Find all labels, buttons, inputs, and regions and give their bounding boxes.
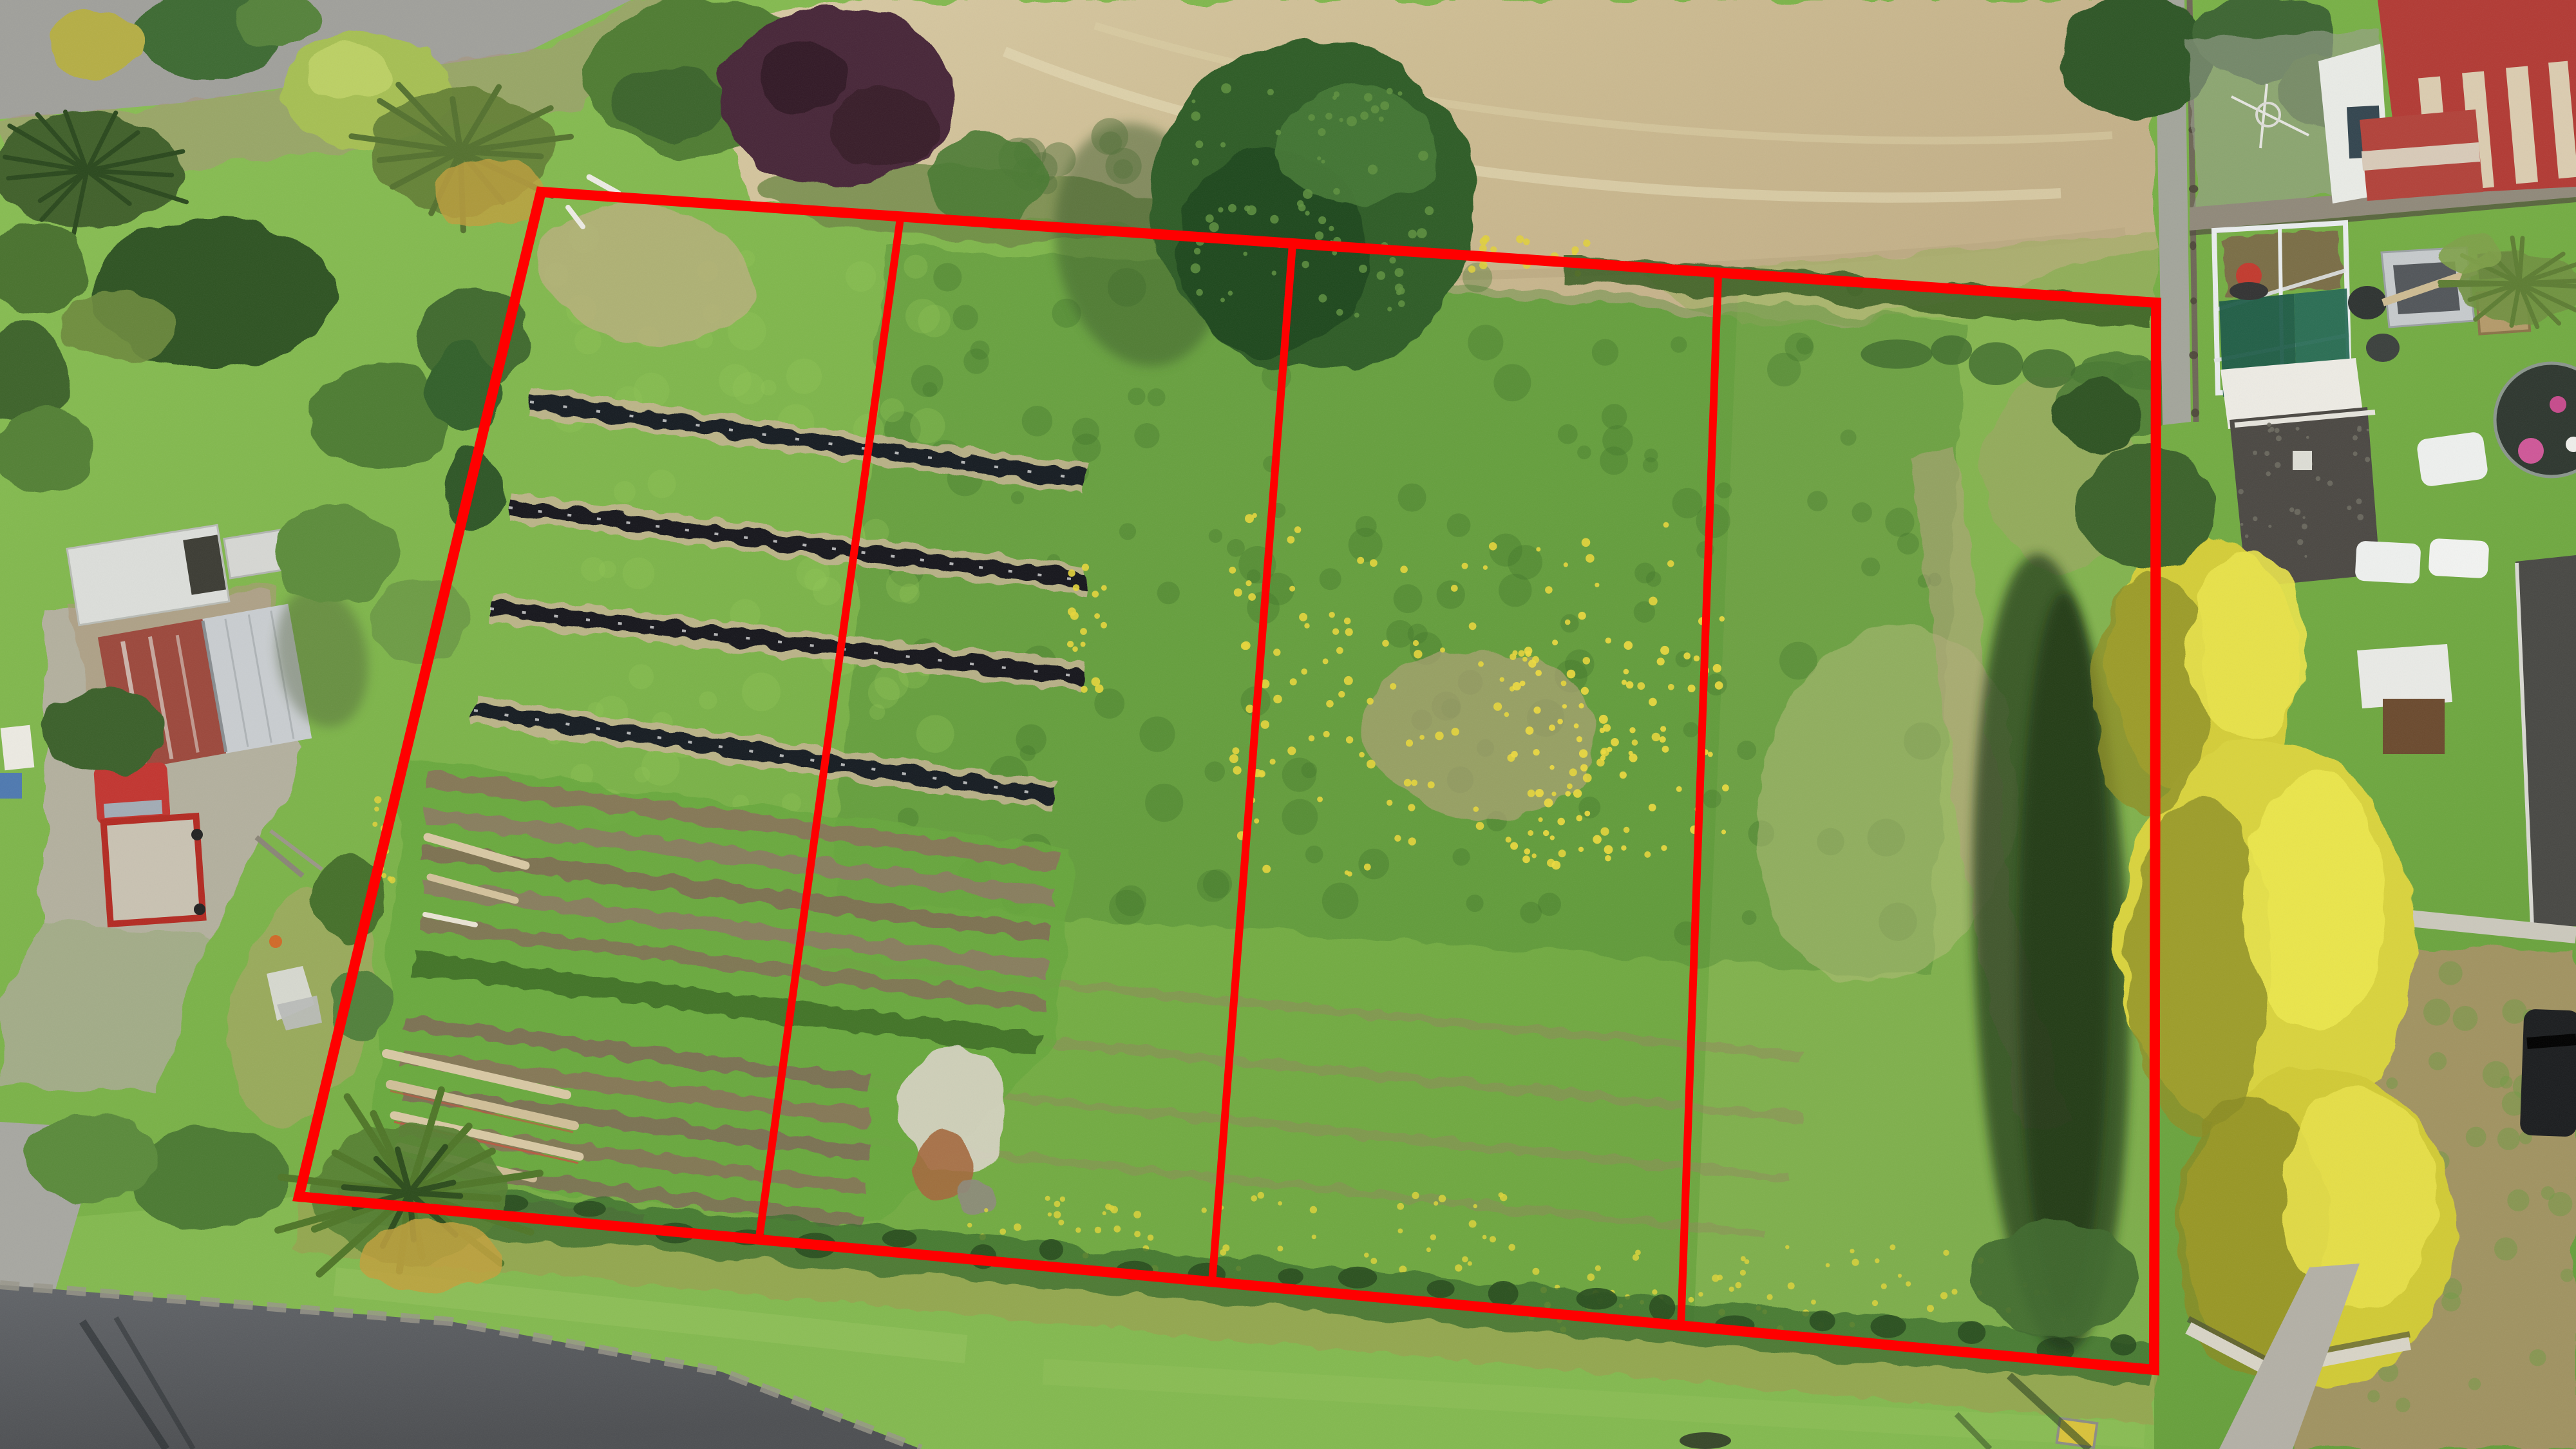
aerial-photo-canvas bbox=[0, 0, 2576, 1449]
aerial-property-photo bbox=[0, 0, 2576, 1449]
photo-grain bbox=[0, 0, 2576, 1449]
photo-content bbox=[0, 0, 2576, 1449]
